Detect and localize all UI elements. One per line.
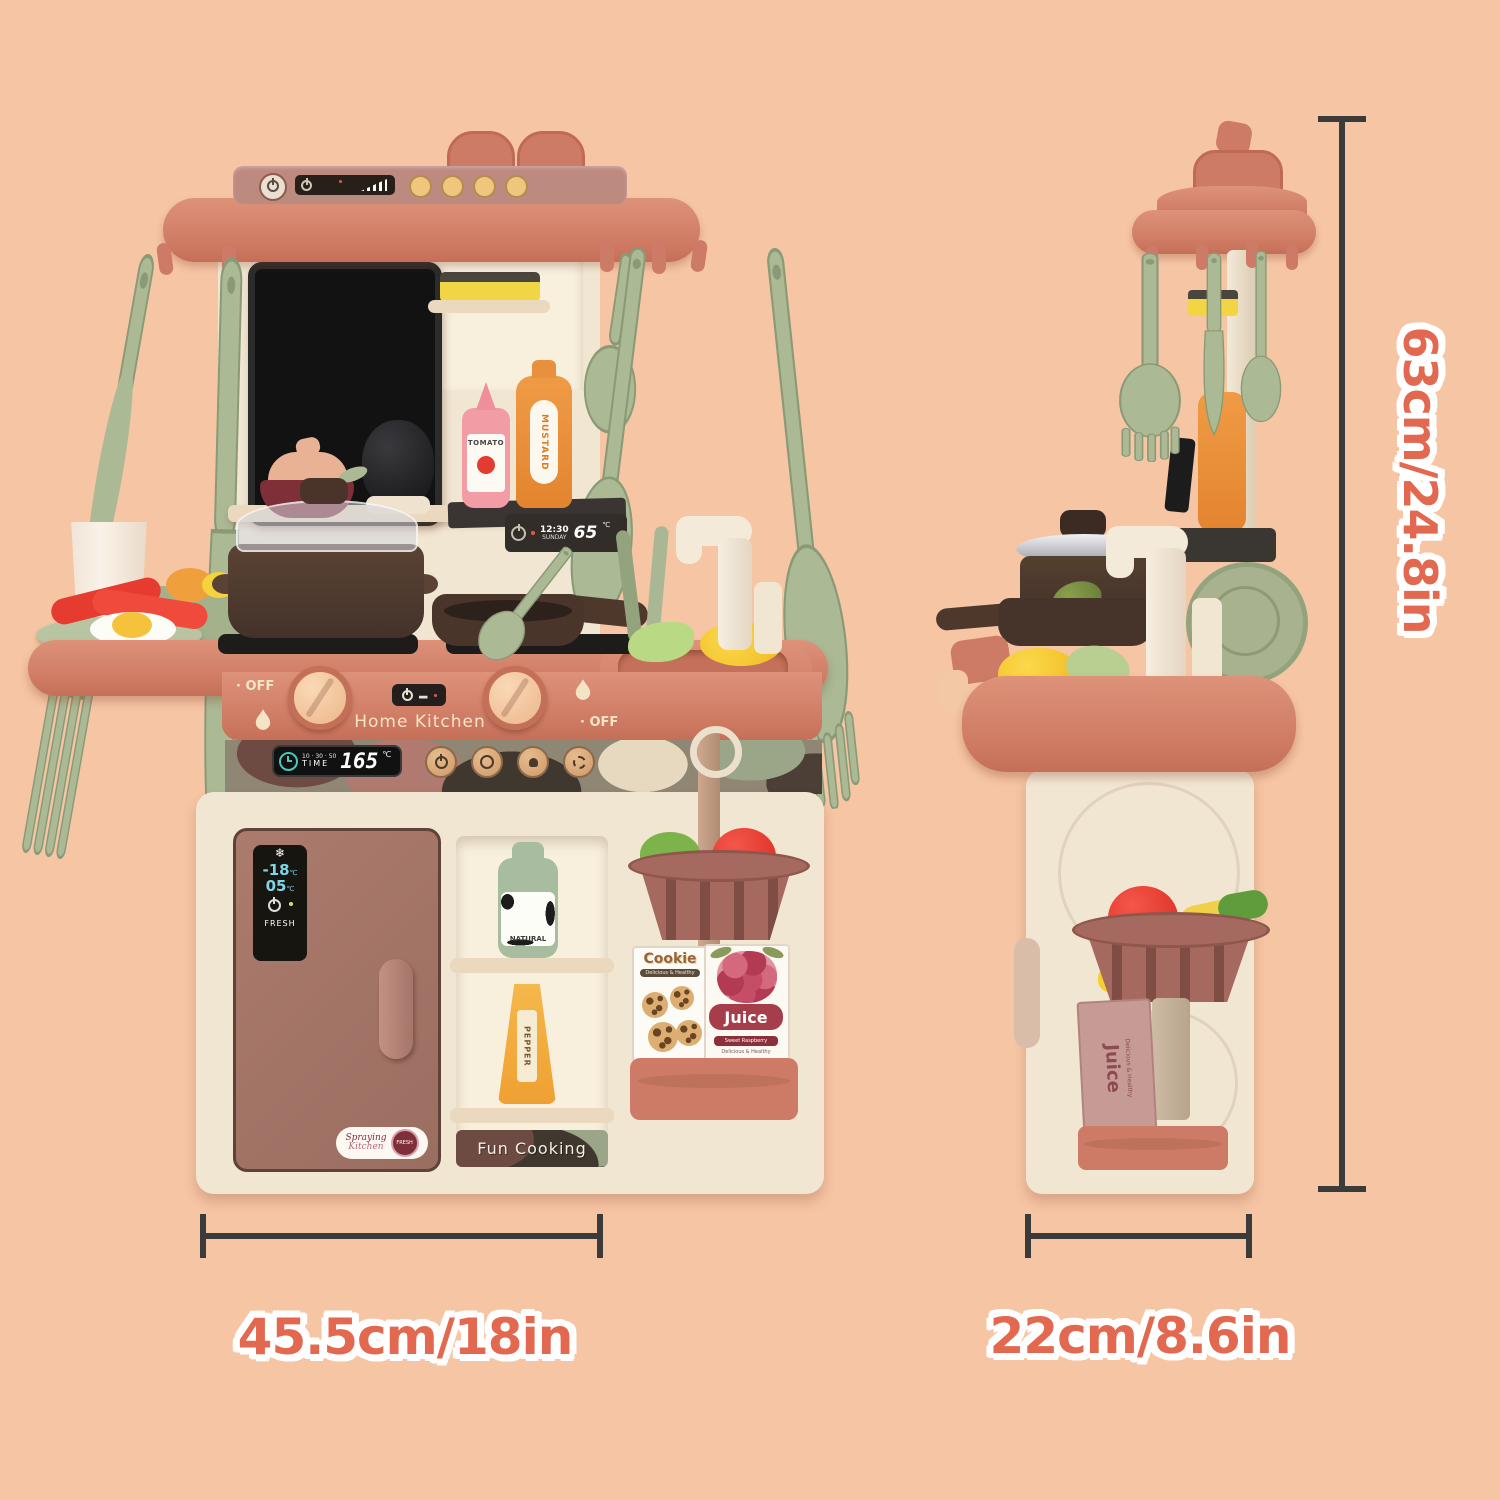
logo-text: Spraying Kitchen [345,1134,386,1152]
raspberry-graphic [717,951,777,1003]
side-width-cap-left [1025,1214,1031,1258]
front-width-dimension-label: 45.5cm/18in [238,1308,573,1366]
fridge-logo: Spraying Kitchen FRESH [336,1127,428,1159]
faucet-spout-tip [676,516,702,564]
pot-lid [236,500,418,552]
ketchup-label: TOMATO [467,434,505,492]
front-width-cap-left [200,1214,206,1258]
faucet-spout-tip [1106,526,1134,578]
footer-text: Fun Cooking [477,1139,586,1158]
fried-egg-yolk [112,612,152,638]
milk-bottle: NATURAL [498,858,558,958]
clock-icon [480,755,494,769]
faucet-sprayer [754,582,782,654]
clock-hand [287,760,292,762]
height-dimension-label: 63cm/24.8in [1393,326,1447,633]
steam-icon [419,692,428,699]
stove-knob-right [483,666,547,730]
knob-off-label-left: · OFF [236,680,274,693]
power-icon [267,180,279,192]
spaghetti-server-utensil [1118,252,1182,462]
fridge-display: ❄ -18℃ 05℃ FRESH [253,845,307,961]
front-width-dimension-line [203,1233,603,1239]
shelf-divider [450,958,614,973]
ketchup-label-text: TOMATO [467,440,505,447]
height-dimension-line [1339,118,1345,1190]
side-door-bump [1014,938,1040,1048]
hood-button-4 [505,175,528,198]
freezer-temp: -18℃ [253,862,307,878]
side-juice-box: Juice Delicious & Healthy [1076,998,1157,1138]
brand-label: Home Kitchen [338,714,502,731]
timer-value: 165 [340,751,378,772]
snowflake-icon: ❄ [253,845,307,862]
flame-icon [574,678,592,702]
sponge-shelf [428,300,550,313]
bulb-icon [529,758,538,767]
sponge [440,272,540,302]
side-width-dimension-line [1028,1233,1252,1239]
faucet-column [1146,548,1186,692]
logo-badge: FRESH [391,1129,419,1157]
timer-label: TIME [302,760,336,768]
timer-unit: ℃ [382,751,391,759]
front-width-cap-right [597,1214,603,1258]
clock-alert-dot [531,531,535,535]
shelf-wave-decor [1084,1138,1222,1150]
cookie-title: Cookie [634,951,706,967]
clock-icon [301,180,312,191]
side-juice-subtitle: Delicious & Healthy [1123,1038,1133,1097]
panel-mini-display [392,684,446,706]
panel-button-mode [563,746,595,778]
utensil-hook [1286,244,1298,270]
temp-unit: ℃ [287,885,295,893]
shelf-wave-decor [638,1074,790,1088]
hood-power-button [259,173,287,201]
power-icon [511,526,526,541]
ketchup-bottle: TOMATO [462,408,510,508]
cookie-graphic [670,986,694,1010]
knob-off-label-right: · OFF [580,716,618,729]
side-pan-body [998,598,1154,646]
juice-box: Juice Sweet Raspberry Delicious & Health… [704,944,790,1068]
cookie-graphic [648,1022,678,1052]
juice-title-band: Juice [709,1004,783,1030]
cookie-graphic [676,1020,702,1046]
pepper-label: PEPPER [517,1010,537,1082]
chiller-temp-value: 05 [266,877,287,895]
side-pole-lower [1152,998,1190,1120]
logo-line2: Kitchen [345,1143,386,1152]
basket-rim [1072,912,1270,948]
faucet-column [718,538,752,650]
power-icon [402,690,413,701]
pepper-label-text: PEPPER [523,1026,532,1067]
panel-button-power [425,746,457,778]
mustard-cap [532,360,556,378]
clock-icon [279,752,298,771]
gear-icon [573,756,586,769]
clock-temp-unit: ℃ [602,522,610,529]
utensil-hook [690,239,708,273]
signal-bars-icon [361,179,387,191]
status-dot [339,180,342,183]
juice-title: Juice [724,1008,767,1027]
temp-unit: ℃ [290,869,298,877]
cookie-graphic [642,992,668,1018]
mustard-label: MUSTARD [530,400,558,484]
shelf-divider [450,1108,614,1123]
power-icon [435,756,448,769]
footer-strip: Fun Cooking [456,1130,608,1167]
hood-button-1 [409,175,432,198]
juice-subtitle: Delicious & Healthy [706,1050,786,1055]
hood-control-strip [233,166,627,204]
mustard-label-text: MUSTARD [539,414,549,471]
juice-flavor-text: Sweet Raspberry [725,1038,767,1044]
side-bottom-shelf [1078,1126,1228,1170]
product-dimension-diagram: TOMATO MUSTARD 12:30 SUNDAY 65 ℃ [0,0,1500,1500]
fridge-power-row [253,897,307,916]
cookie-box: Cookie Delicious & Healthy [632,946,708,1062]
pot-lid-knob [300,478,348,504]
basket-ring [690,726,742,778]
fridge-handle [379,959,413,1059]
chiller-temp: 05℃ [253,878,307,894]
knife-utensil [1194,252,1234,437]
alert-dot [434,694,437,697]
tomato-graphic [477,456,495,474]
flame-icon [254,708,272,732]
side-width-cap-right [1246,1214,1252,1258]
hood-button-2 [441,175,464,198]
spoon-utensil [1240,250,1282,425]
mustard-bottle: MUSTARD [516,376,572,508]
pot-body [228,544,424,638]
clock-temp: 65 [574,525,598,542]
fridge-door: ❄ -18℃ 05℃ FRESH Spraying Kitchen FRESH [233,828,441,1172]
logo-badge-text: FRESH [396,1140,412,1146]
power-icon [268,899,281,912]
cookie-subtitle: Delicious & Healthy [640,969,700,977]
front-upper-right-opening [433,250,583,390]
hood-status-display [295,175,395,195]
panel-button-light [517,746,549,778]
hood-button-3 [473,175,496,198]
basket-bottom-shelf [630,1058,798,1120]
side-juice-title: Juice [1101,1043,1125,1093]
panel-button-timer [471,746,503,778]
timer-display: 10 · 30 · 50 TIME 165 ℃ [272,745,402,777]
stove-control-panel: · OFF Home Kitchen · OFF [222,672,822,740]
height-dimension-cap-bottom [1318,1186,1366,1192]
cookie-subtitle-text: Delicious & Healthy [645,970,694,976]
side-width-dimension-label: 22cm/8.6in [990,1307,1291,1365]
kettle-body [362,420,434,506]
height-dimension-cap-top [1318,116,1366,122]
fridge-fresh-label: FRESH [253,920,307,928]
status-led [289,902,293,906]
side-counter [962,676,1296,772]
juice-flavor-pill: Sweet Raspberry [714,1036,778,1046]
milk-label-text: NATURAL [498,936,558,943]
basket-rim [628,850,810,882]
